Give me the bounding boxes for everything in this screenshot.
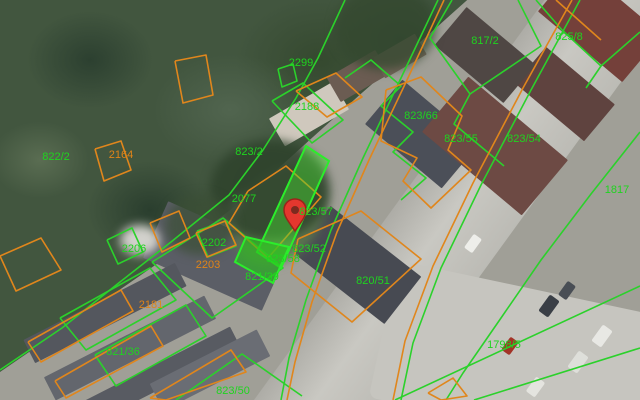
map-canvas[interactable]: 22992188823/2822/22164817/2825/8823/6682… [0, 0, 640, 400]
building-line-orange [28, 290, 133, 362]
building-line-orange [95, 141, 131, 181]
parcel-line-green [401, 0, 580, 400]
building-line-orange [393, 0, 572, 400]
parcel-line-green [536, 0, 640, 66]
building-line-orange [175, 55, 213, 103]
parcel-line-green [474, 348, 640, 400]
parcel-line-green [446, 132, 640, 400]
parcel-line-green [395, 286, 640, 400]
parcel-line-green [278, 64, 297, 87]
parcel-line-green [586, 66, 601, 88]
parcel-line-green [345, 60, 426, 200]
building-line-orange [381, 77, 471, 208]
building-line-orange [150, 350, 246, 400]
parcel-line-green [430, 0, 541, 94]
cadastral-overlay [0, 0, 640, 400]
building-line-orange [0, 238, 61, 291]
building-line-orange [196, 221, 236, 257]
parcel-line-green [107, 228, 143, 264]
building-line-orange [556, 0, 601, 40]
parcel-line-green [272, 83, 343, 143]
parcel-line-green [197, 221, 236, 257]
